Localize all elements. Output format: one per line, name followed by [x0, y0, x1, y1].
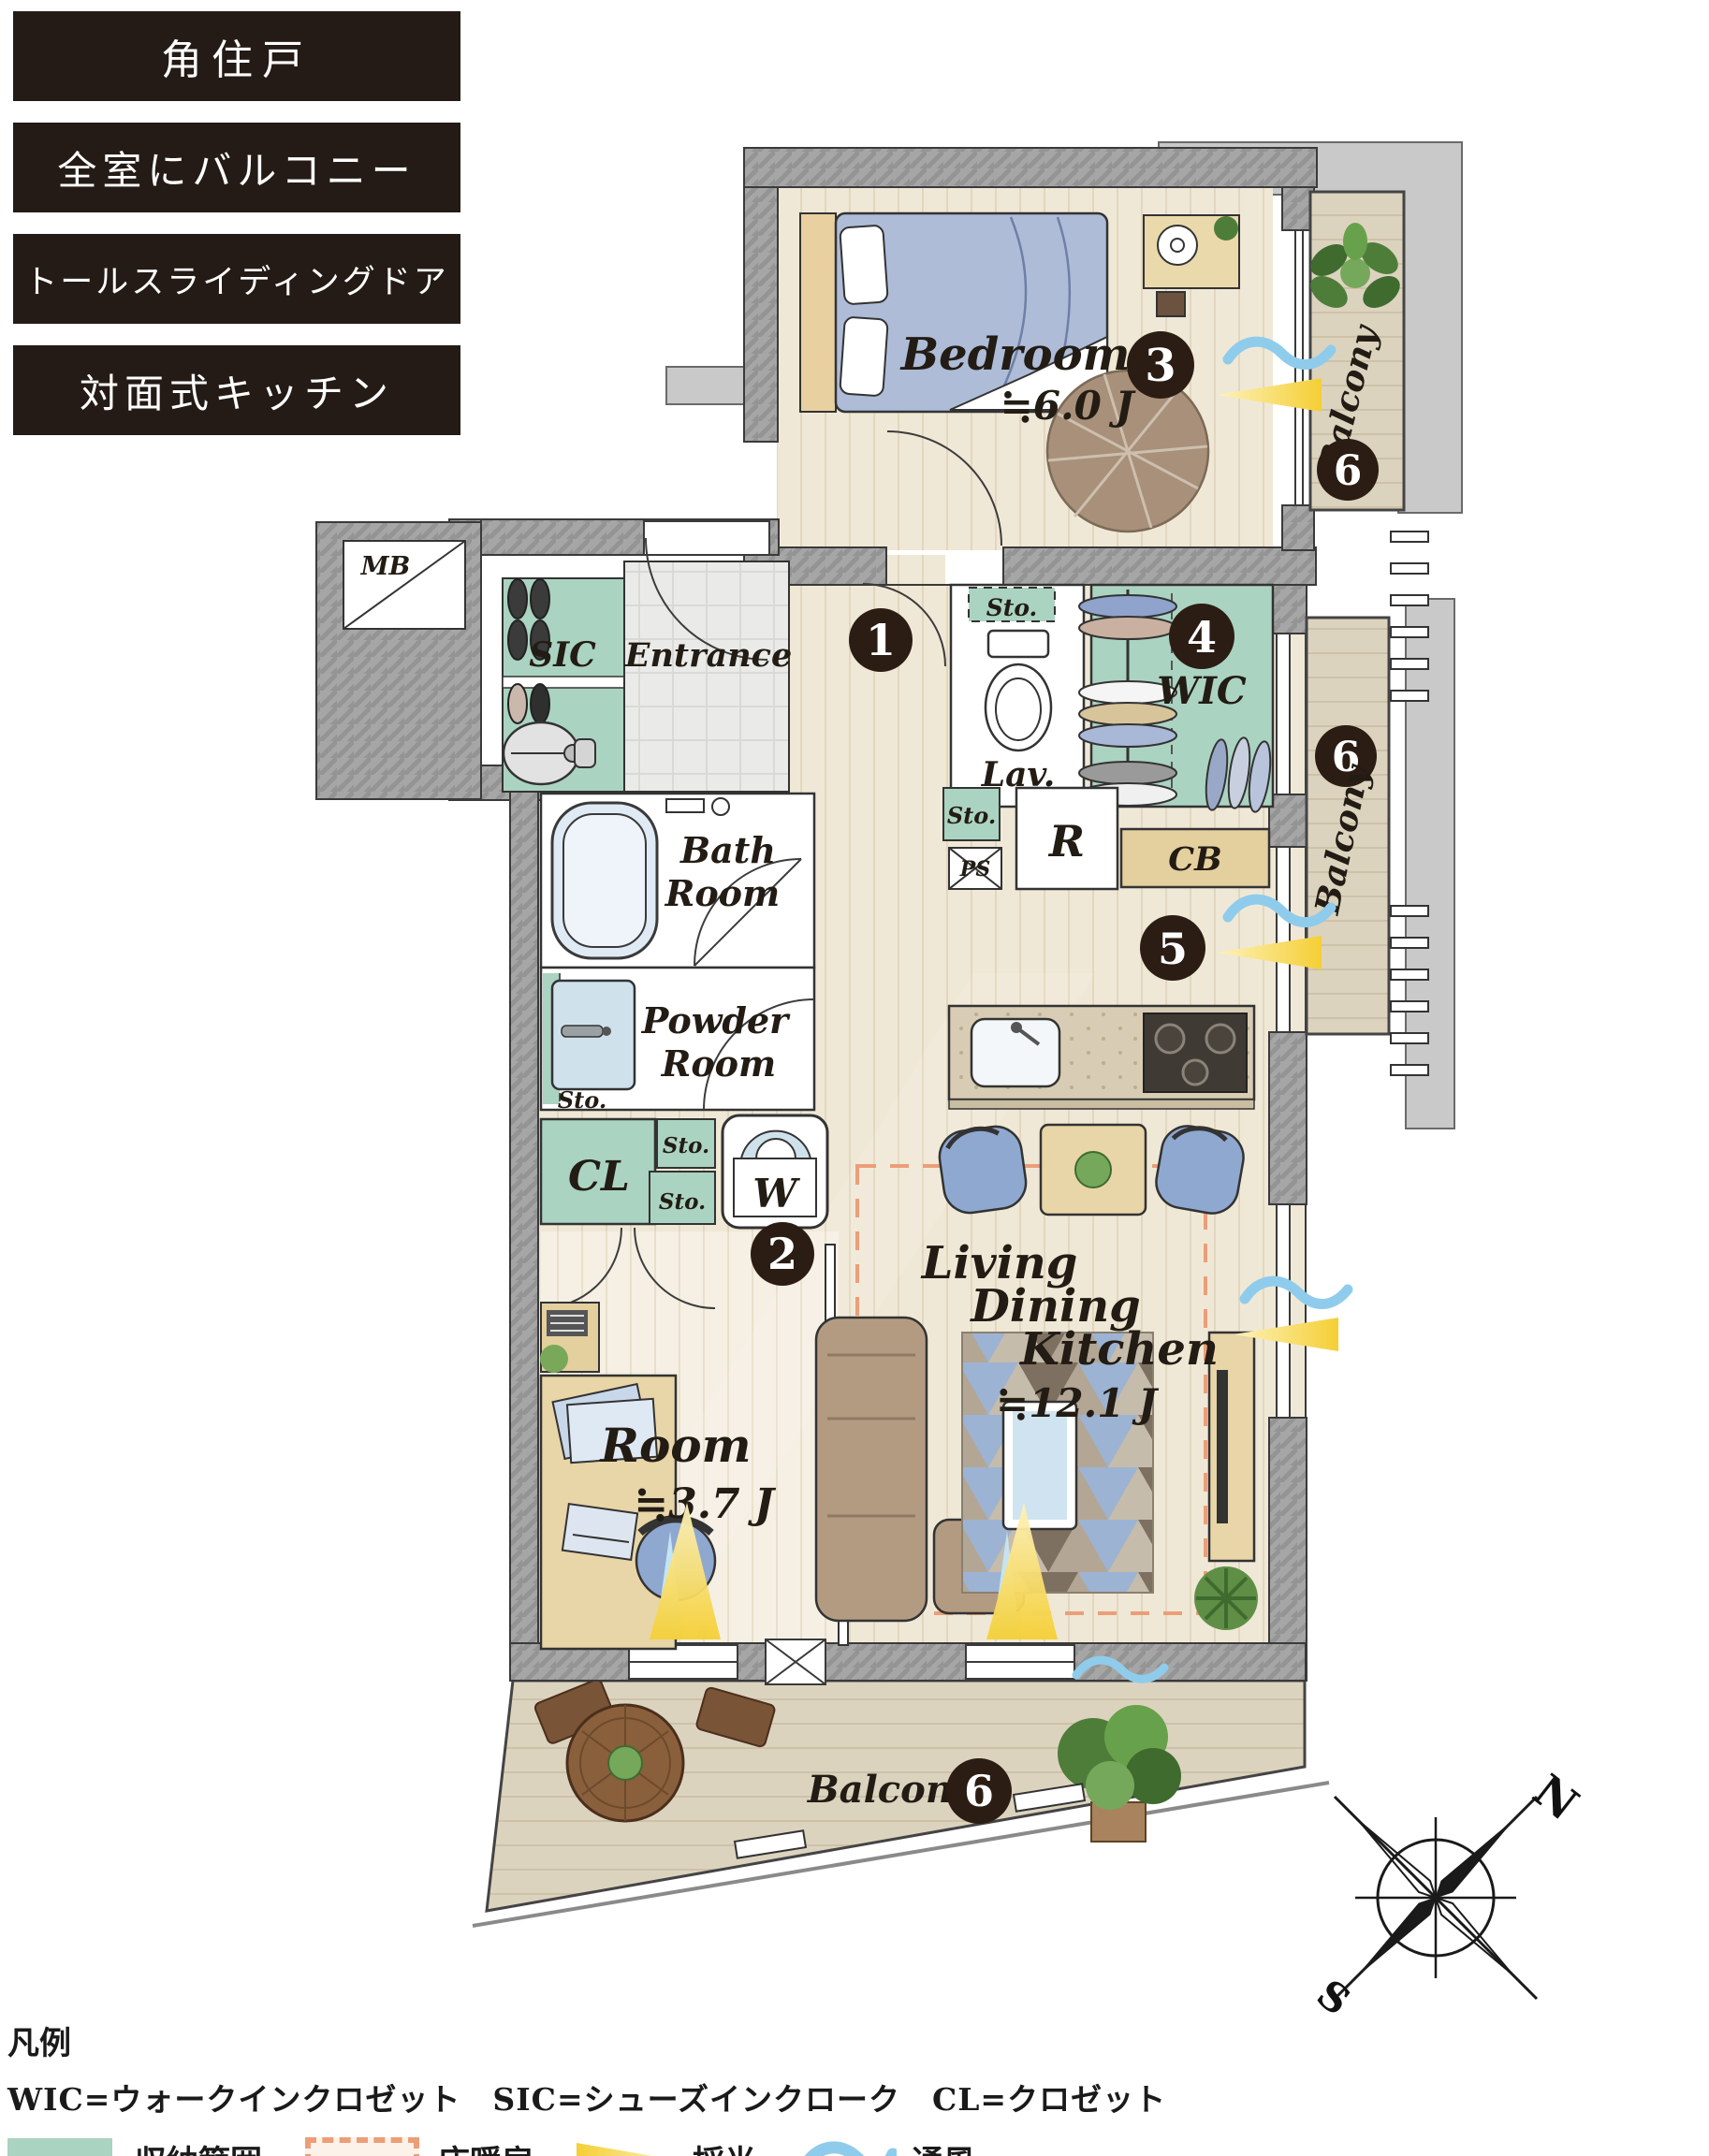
sto-a-label: Sto. [663, 1133, 709, 1158]
badge-room: 2 [751, 1222, 814, 1286]
compass-north-label: N [1523, 1765, 1587, 1831]
kitchen [949, 1006, 1254, 1109]
svg-text:1: 1 [866, 615, 896, 665]
svg-text:4: 4 [1187, 612, 1217, 663]
pipe-shaft: PS [949, 848, 1001, 889]
wic-label: WIC [1157, 669, 1247, 713]
legend-abbreviations: WIC=ウォークインクロゼット SIC=シューズインクローク CL=クロゼット [7, 2075, 1166, 2120]
banner-corner-unit: 角住戸 [13, 11, 460, 101]
entrance-floor [624, 561, 789, 792]
bath-powder: Bath Room Powder Room Sto. [541, 794, 814, 1114]
svg-text:2: 2 [767, 1229, 797, 1279]
floorplan-page: 角住戸 全室にバルコニー トールスライディングドア 対面式キッチン [0, 0, 1709, 2156]
feature-banners: 角住戸 全室にバルコニー トールスライディングドア 対面式キッチン [13, 11, 460, 457]
legend-row: 収納範囲 床暖房 採光 通風 [7, 2136, 1166, 2156]
bottom-balcony: Balcony 6 [487, 1678, 1305, 1911]
sto-kitchen-label: Sto. [947, 802, 996, 829]
room-label: Room [598, 1418, 751, 1473]
heated-floor-swatch [305, 2137, 419, 2156]
lav-wic: Sto. Lav. [951, 585, 1274, 813]
ps-label: PS [959, 857, 990, 881]
w-label: W [752, 1171, 800, 1216]
ldk-label-3: Kitchen [1018, 1323, 1219, 1376]
legend: 凡例 WIC=ウォークインクロゼット SIC=シューズインクローク CL=クロゼ… [7, 2018, 1166, 2156]
ldk-corner-plant [1194, 1566, 1258, 1630]
sto-b-label: Sto. [659, 1189, 706, 1215]
ventilation-wave-icon [799, 2139, 897, 2156]
legend-heated-floor-label: 床暖房 [438, 2136, 533, 2156]
ldk-size: ≒12.1 J [996, 1380, 1160, 1426]
powder-label-2: Room [661, 1042, 776, 1085]
compass: N S [1308, 1765, 1587, 2024]
cb-label: CB [1168, 840, 1221, 879]
sic-label: SIC [529, 635, 596, 675]
badge-bedroom: 3 [1127, 331, 1194, 399]
washing-machine: W [723, 1115, 827, 1228]
badge-balcony-bottom: 6 [946, 1758, 1012, 1824]
banner-tall-sliding-door: トールスライディングドア [13, 234, 460, 324]
legend-storage-label: 収納範囲 [135, 2136, 262, 2156]
legend-title: 凡例 [7, 2018, 1166, 2063]
bath-label-2: Room [665, 872, 780, 914]
powder-sto-label: Sto. [558, 1086, 606, 1114]
daylight-swatch [577, 2141, 678, 2156]
badge-wic: 4 [1169, 604, 1234, 669]
daylight-wedge-icon [577, 2141, 678, 2156]
legend-ventilation-label: 通風 [912, 2136, 975, 2156]
svg-text:5: 5 [1158, 924, 1188, 974]
compass-south-label: S [1308, 1971, 1359, 2024]
mb-label: MB [360, 552, 411, 581]
badge-hall: 1 [849, 608, 913, 672]
legend-daylight-label: 採光 [693, 2136, 756, 2156]
room-size: ≒3.7 J [634, 1480, 777, 1528]
dining-set [936, 1122, 1248, 1217]
badge-balcony-top: 6 [1317, 439, 1379, 501]
entrance-label: Entrance [624, 636, 792, 675]
svg-text:3: 3 [1145, 340, 1176, 392]
powder-label-1: Powder [641, 999, 791, 1042]
bedroom-size: ≒6.0 J [1001, 383, 1137, 429]
balcony-plant [1058, 1705, 1181, 1842]
bath-label-1: Bath [679, 829, 776, 871]
badge-ldk: 5 [1140, 915, 1205, 981]
banner-all-balcony: 全室にバルコニー [13, 123, 460, 212]
banner-counter-kitchen: 対面式キッチン [13, 345, 460, 435]
powder-sink [552, 981, 635, 1089]
bedroom-label: Bedroom [899, 328, 1131, 381]
svg-text:6: 6 [964, 1766, 994, 1816]
svg-text:6: 6 [1334, 447, 1363, 495]
ventilation-swatch [799, 2139, 897, 2156]
lav-sto-label: Sto. [986, 594, 1038, 621]
toilet [986, 631, 1051, 750]
r-label: R [1047, 816, 1085, 867]
storage-swatch [7, 2138, 112, 2156]
cl-label: CL [568, 1153, 630, 1201]
meter-box: MB [343, 541, 465, 629]
